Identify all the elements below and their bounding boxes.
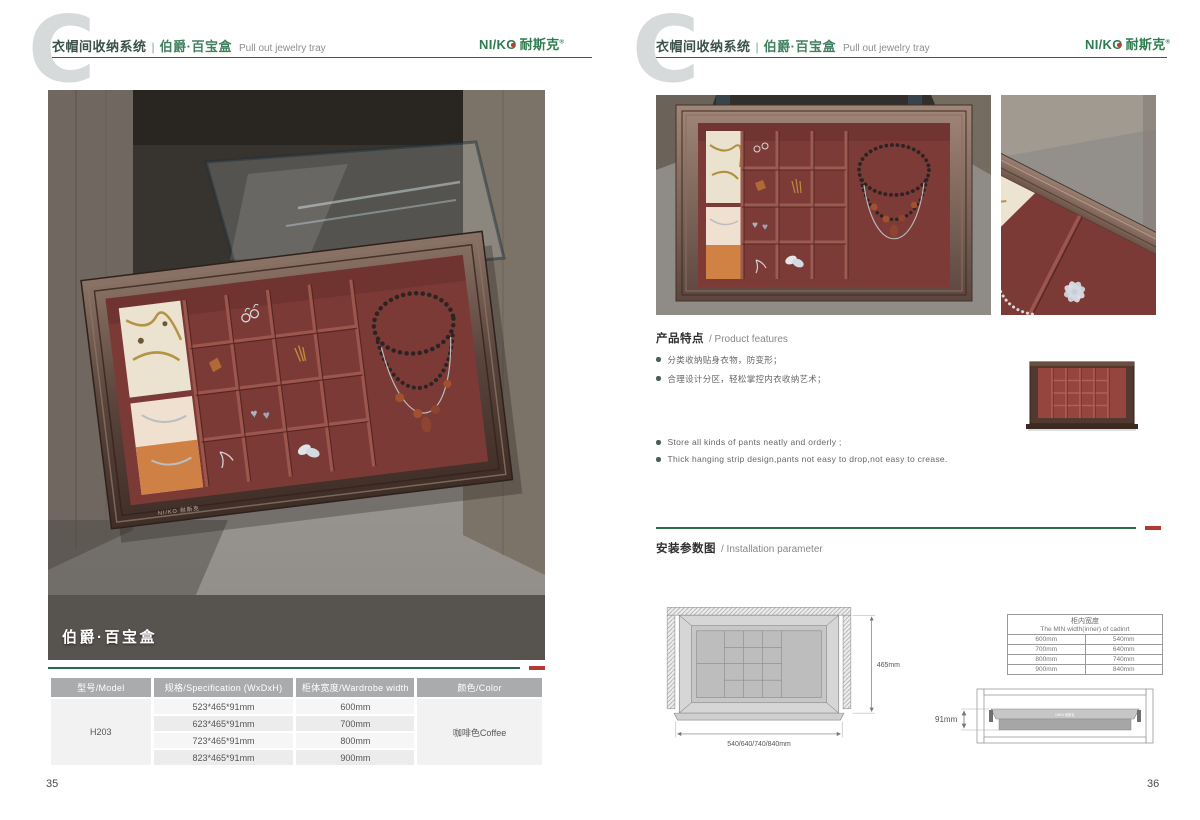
installation-title: 安装参数图 / Installation parameter xyxy=(656,540,823,556)
photo-caption: 伯爵·百宝盒 xyxy=(62,626,157,647)
table-row: H203 523*465*91mm 600mm 咖啡色Coffee xyxy=(51,699,542,714)
spec-table: 型号/Model 规格/Specification (WxDxH) 柜体宽度/W… xyxy=(48,676,545,767)
height-dimension-label: 91mm xyxy=(935,715,958,724)
installation-sideview-diagram: NI/KO 耐斯克 91mm xyxy=(933,684,1167,750)
features-title: 产品特点 / Product features xyxy=(656,330,788,346)
divider-red-bar xyxy=(529,666,545,670)
jewelry-tray-illustration: ♥ ♥ NI/KO 耐斯克 xyxy=(81,230,522,543)
width-value: 900mm xyxy=(296,750,414,765)
bullet-icon xyxy=(656,440,661,445)
title-separator: | xyxy=(152,40,155,54)
registered-mark: ® xyxy=(560,40,565,46)
brand-logo-zh: 耐斯克 xyxy=(1126,37,1166,52)
brand-logo-latin: NI/KO xyxy=(1085,37,1123,52)
min-width-title-en: The MIN width(inner) of cadinrt xyxy=(1008,626,1162,633)
spec-table-header-row: 型号/Model 规格/Specification (WxDxH) 柜体宽度/W… xyxy=(51,678,542,697)
catalog-spread: { "brand": {"latin": "NI/KO", "zh": "耐斯克… xyxy=(0,0,1200,820)
spec-value: 823*465*91mm xyxy=(154,750,294,765)
width-value: 600mm xyxy=(296,699,414,714)
table-row: 900mm 840mm xyxy=(1008,665,1163,675)
bullet-icon xyxy=(656,376,661,381)
section-divider xyxy=(656,526,1161,530)
features-title-en: / Product features xyxy=(709,334,788,345)
series-title: 衣帽间收纳系统 xyxy=(656,36,751,55)
title-separator: | xyxy=(756,40,759,54)
width-value: 800mm xyxy=(296,733,414,748)
brand-logo-zh: 耐斯克 xyxy=(520,37,560,52)
brand-logo: NI/KO耐斯克® xyxy=(479,34,564,53)
installation-topview-diagram: 465mm 540/640/740/840mm xyxy=(655,602,915,748)
product-render-thumbnail xyxy=(1012,346,1152,446)
spec-value: 723*465*91mm xyxy=(154,733,294,748)
tray-topview-photo-illustration: ♥ ♥ xyxy=(656,95,991,315)
wardrobe-tray-photo-illustration: ♥ ♥ NI/KO 耐斯克 xyxy=(48,90,545,660)
product-title-zh: 伯爵·百宝盒 xyxy=(160,36,232,55)
section-divider xyxy=(48,666,545,670)
min-width-table: 柜内宽度 The MIN width(inner) of cadinrt 600… xyxy=(1007,614,1163,675)
brand-logo-latin: NI/KO xyxy=(479,37,517,52)
page-header-title: 衣帽间收纳系统 | 伯爵·百宝盒 Pull out jewelry tray xyxy=(52,36,326,55)
spec-value: 523*465*91mm xyxy=(154,699,294,714)
list-item: 合理设计分区，轻松掌控内衣收纳艺术； xyxy=(656,373,826,385)
product-title-zh: 伯爵·百宝盒 xyxy=(764,36,836,55)
divider-green-bar xyxy=(48,667,520,670)
table-row: 700mm 640mm xyxy=(1008,645,1163,655)
page-number-right: 36 xyxy=(1147,778,1159,790)
min-width-table-header: 柜内宽度 The MIN width(inner) of cadinrt xyxy=(1008,615,1163,635)
bullet-icon xyxy=(656,357,661,362)
color-value: 咖啡色Coffee xyxy=(417,699,542,765)
col-wardrobe-width: 柜体宽度/Wardrobe width xyxy=(296,678,414,697)
width-dimension-label: 540/640/740/840mm xyxy=(727,741,791,748)
product-title-en: Pull out jewelry tray xyxy=(239,43,326,54)
installation-title-en: / Installation parameter xyxy=(721,544,823,555)
bullet-icon xyxy=(656,457,661,462)
col-color: 颜色/Color xyxy=(417,678,542,697)
brand-logo: NI/KO耐斯克® xyxy=(1085,34,1170,53)
model-value: H203 xyxy=(51,699,151,765)
spec-value: 623*465*91mm xyxy=(154,716,294,731)
depth-dimension-label: 465mm xyxy=(877,662,900,669)
col-specification: 规格/Specification (WxDxH) xyxy=(154,678,294,697)
header-rule xyxy=(52,57,592,58)
installation-title-zh: 安装参数图 xyxy=(656,540,716,556)
list-item: 分类收纳贴身衣物，防变形； xyxy=(656,354,826,366)
series-title: 衣帽间收纳系统 xyxy=(52,36,147,55)
page-number-left: 35 xyxy=(46,778,58,790)
list-item: Thick hanging strip design,pants not eas… xyxy=(656,454,948,464)
list-item: Store all kinds of pants neatly and orde… xyxy=(656,437,948,447)
col-model: 型号/Model xyxy=(51,678,151,697)
width-value: 700mm xyxy=(296,716,414,731)
svg-text:♥: ♥ xyxy=(752,220,758,231)
product-title-en: Pull out jewelry tray xyxy=(843,43,930,54)
divider-red-bar xyxy=(1145,526,1161,530)
features-title-zh: 产品特点 xyxy=(656,330,704,346)
min-width-title-zh: 柜内宽度 xyxy=(1008,616,1162,626)
registered-mark: ® xyxy=(1166,40,1171,46)
features-list-en: Store all kinds of pants neatly and orde… xyxy=(656,437,948,471)
features-list-zh: 分类收纳贴身衣物，防变形； 合理设计分区，轻松掌控内衣收纳艺术； xyxy=(656,354,826,392)
page-header-title: 衣帽间收纳系统 | 伯爵·百宝盒 Pull out jewelry tray xyxy=(656,36,930,55)
table-row: 800mm 740mm xyxy=(1008,655,1163,665)
table-row: 600mm 540mm xyxy=(1008,635,1163,645)
divider-green-bar xyxy=(656,527,1136,530)
main-product-photo: ♥ ♥ NI/KO 耐斯克 伯爵·百宝盒 xyxy=(48,90,545,660)
tray-closeup-photo-illustration xyxy=(1001,95,1156,315)
header-rule xyxy=(656,57,1167,58)
svg-text:♥: ♥ xyxy=(762,222,768,233)
drawer-watermark: NI/KO 耐斯克 xyxy=(1055,712,1075,717)
